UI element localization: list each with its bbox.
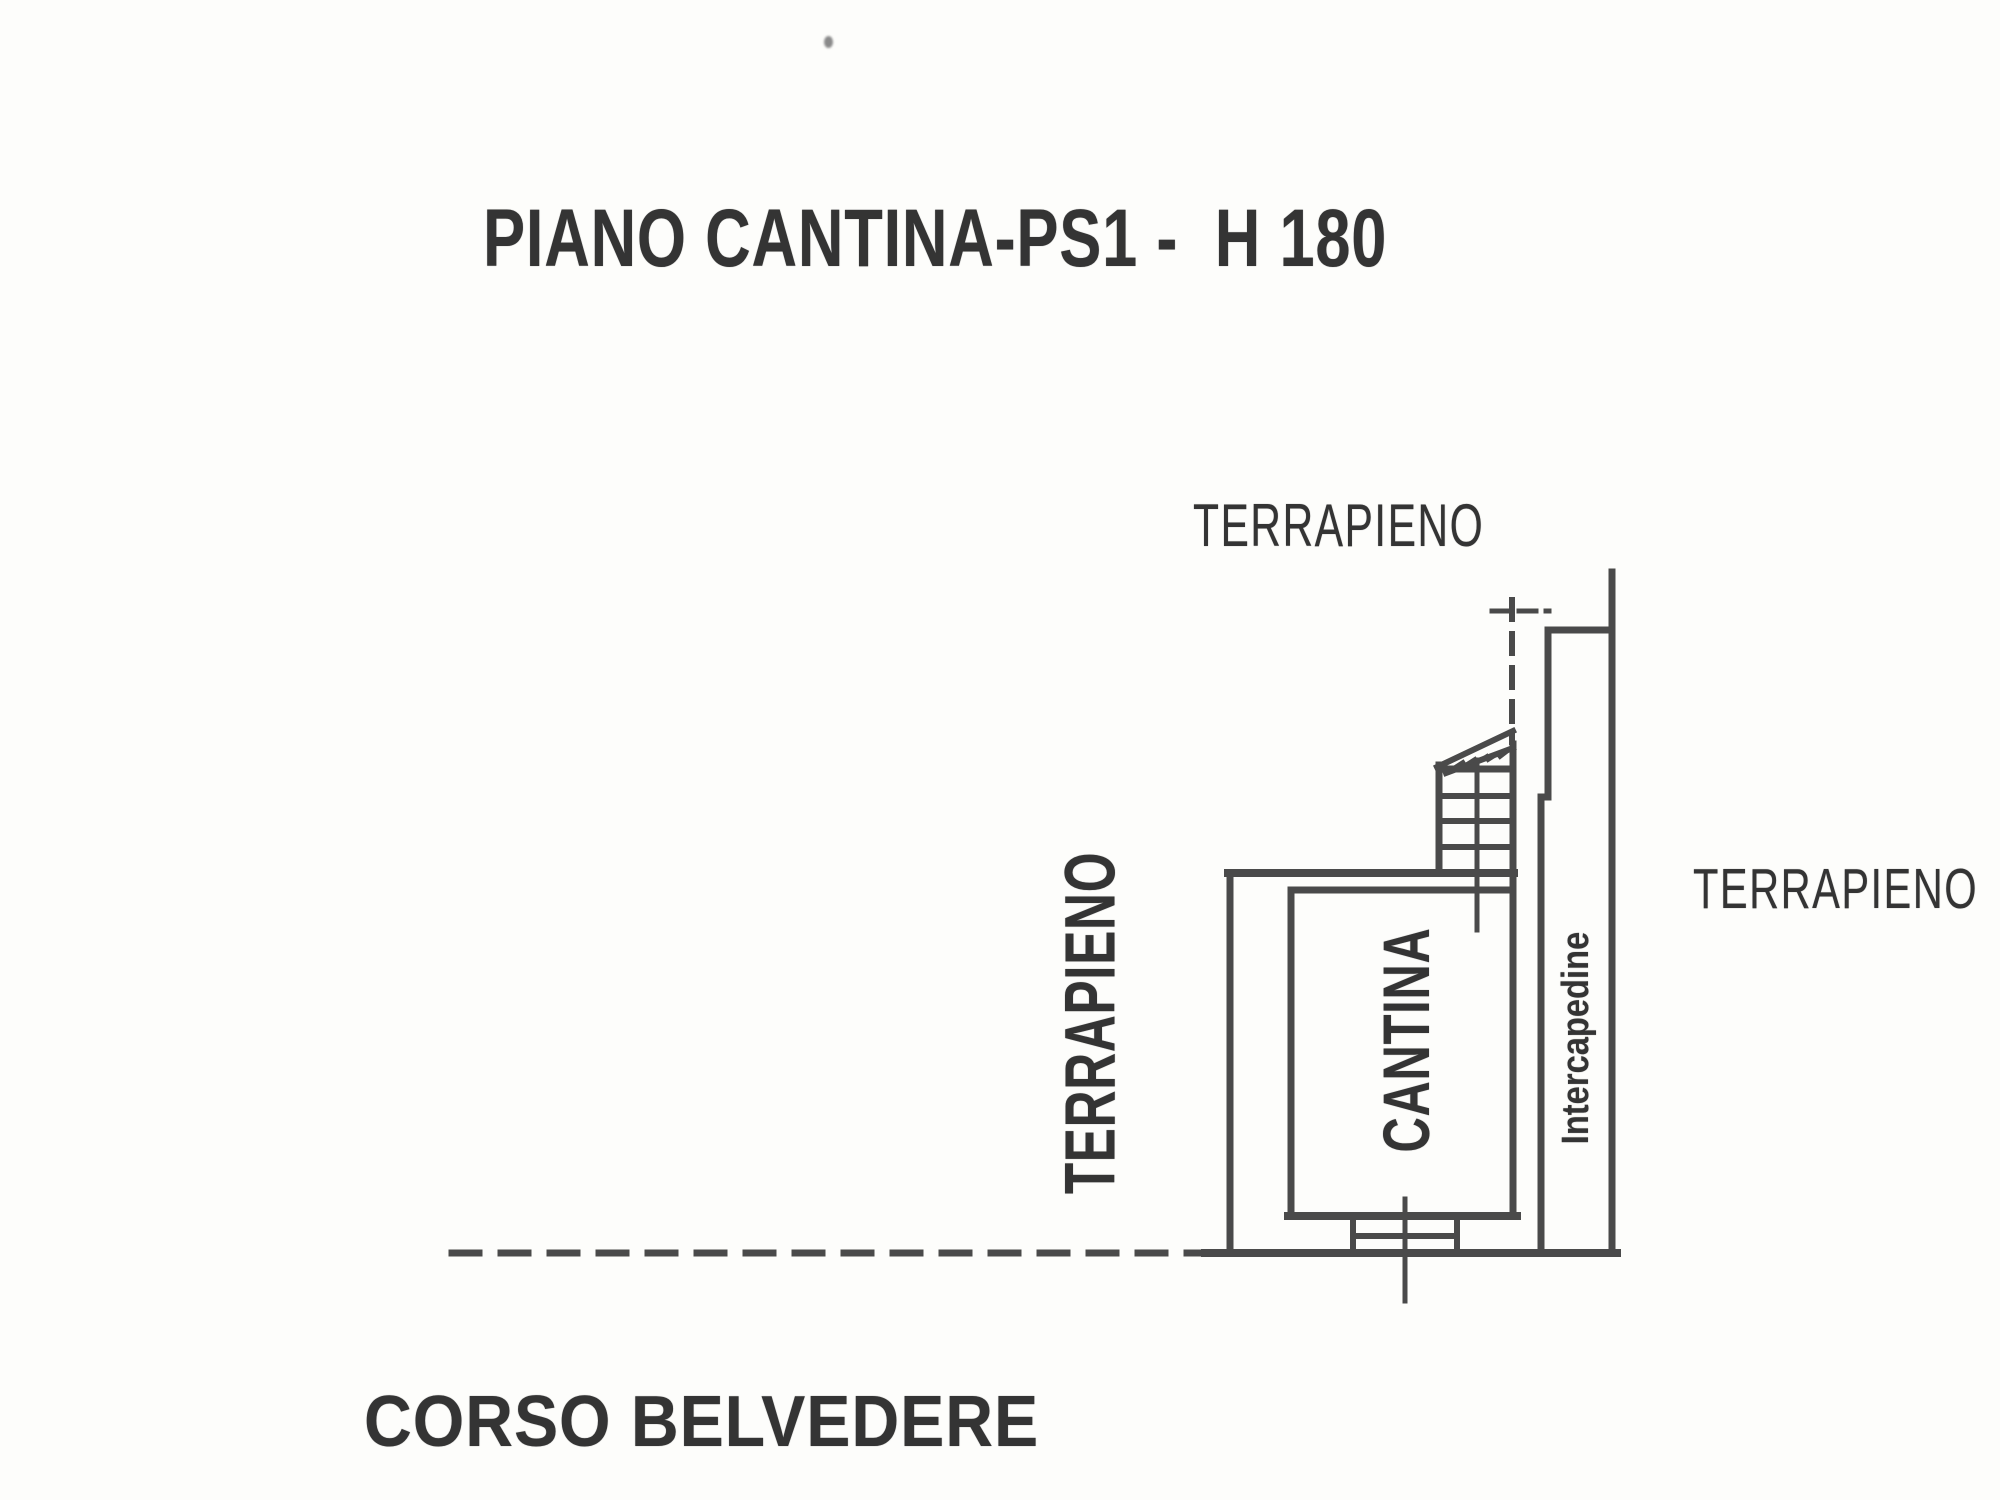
label-terrapieno-top: TERRAPIENO — [1193, 496, 1484, 556]
wall-intercapedine-inner — [1541, 630, 1548, 1253]
floor-plan-scan: PIANO CANTINA-PS1 - H 180 TERRAPIENO TER… — [0, 0, 2000, 1500]
plan-title: PIANO CANTINA-PS1 - H 180 — [483, 198, 1387, 280]
scan-artifact — [824, 36, 833, 48]
label-street-corso-belvedere: CORSO BELVEDERE — [364, 1386, 1039, 1458]
stair — [1439, 760, 1512, 930]
label-intercapedine: Intercapedine — [1557, 932, 1595, 1144]
label-room-cantina: CANTINA — [1373, 928, 1439, 1153]
label-terrapieno-left: TERRAPIENO — [1056, 852, 1127, 1194]
label-terrapieno-right: TERRAPIENO — [1693, 861, 1978, 918]
